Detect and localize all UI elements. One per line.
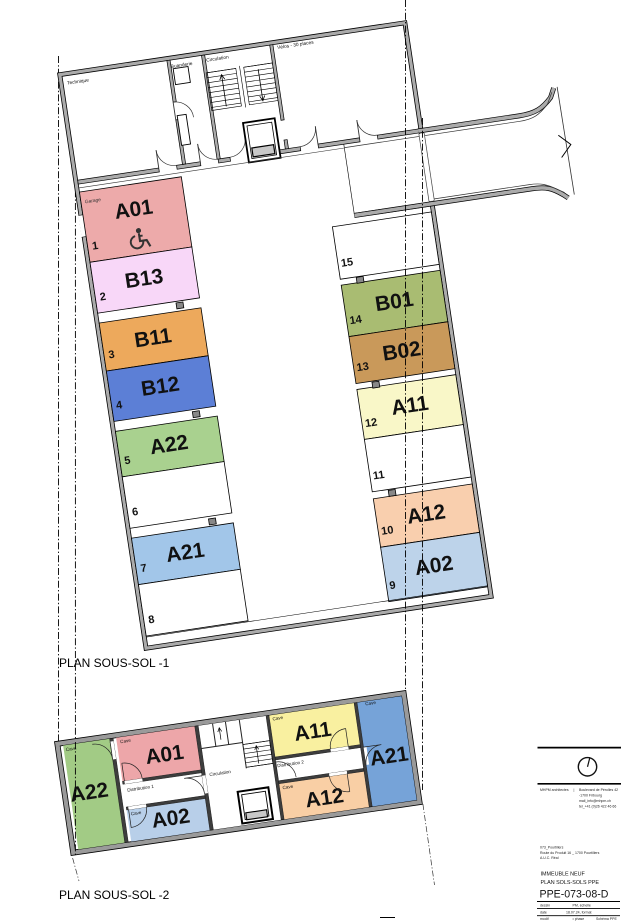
svg-text:12: 12	[364, 416, 378, 430]
svg-text:13: 13	[356, 361, 370, 375]
svg-text:A.U.C. Réal: A.U.C. Réal	[540, 856, 559, 860]
svg-text:modif: modif	[540, 917, 549, 921]
svg-text:dessin: dessin	[540, 903, 550, 907]
svg-text:PLAN SOUS-SOL -2: PLAN SOUS-SOL -2	[59, 888, 170, 902]
svg-text:073_Pourtillers: 073_Pourtillers	[540, 846, 564, 850]
svg-text:18.07.24, format: 18.07.24, format	[566, 910, 592, 914]
svg-text:Schéma PPE: Schéma PPE	[596, 917, 617, 921]
svg-text:15: 15	[340, 256, 354, 270]
svg-text:PLAN SOUS-SOL -1: PLAN SOUS-SOL -1	[59, 656, 170, 670]
svg-text:• phase: • phase	[573, 917, 585, 921]
svg-text:-1700 Fribourg: -1700 Fribourg	[579, 794, 602, 798]
svg-text:11: 11	[372, 469, 385, 483]
svg-text:Boulevard de Pérolles 42: Boulevard de Pérolles 42	[579, 788, 618, 792]
svg-text:date: date	[540, 910, 547, 914]
svg-text:|: |	[574, 788, 575, 792]
svg-text:mail_info@mhpm.ch: mail_info@mhpm.ch	[579, 799, 611, 803]
svg-text:PM, échelle: PM, échelle	[573, 903, 591, 907]
svg-text:PLAN SOLS-SOLS PPE: PLAN SOLS-SOLS PPE	[541, 880, 600, 886]
svg-text:tel_+41 (0)26 422 46 66: tel_+41 (0)26 422 46 66	[579, 805, 616, 809]
svg-text:PPE-073-08-D: PPE-073-08-D	[540, 889, 609, 901]
svg-text:MHPM architectes: MHPM architectes	[540, 788, 569, 792]
svg-text:Route du Produit 16 _ 1700 Pou: Route du Produit 16 _ 1700 Pourtillers	[540, 851, 600, 855]
svg-text:10: 10	[380, 524, 394, 538]
svg-text:IMMEUBLE NEUF: IMMEUBLE NEUF	[541, 872, 586, 878]
